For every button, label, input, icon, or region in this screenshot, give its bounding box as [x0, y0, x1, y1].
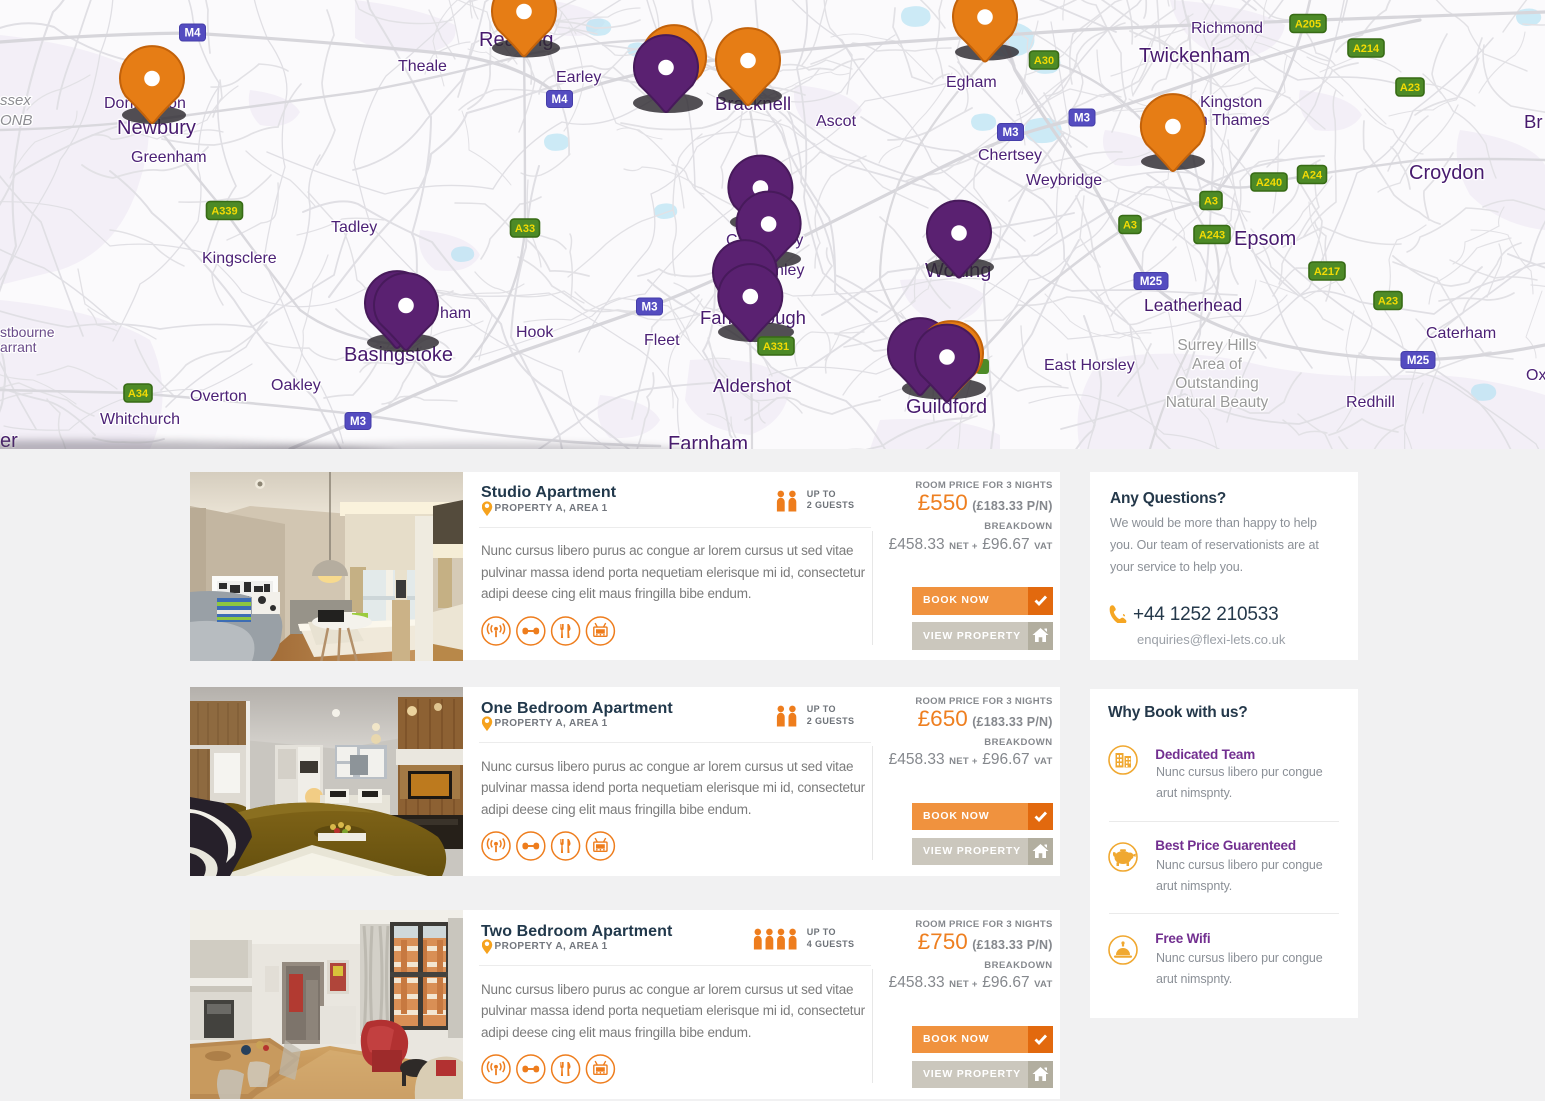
svg-text:Epsom: Epsom — [1234, 228, 1296, 250]
svg-text:M3: M3 — [1074, 113, 1090, 125]
svg-text:Weybridge: Weybridge — [1026, 172, 1102, 189]
svg-text:Whitchurch: Whitchurch — [100, 411, 180, 428]
svg-text:A30: A30 — [1034, 55, 1054, 67]
svg-text:M25: M25 — [1407, 355, 1430, 367]
svg-text:Richmond: Richmond — [1191, 20, 1263, 37]
svg-text:A34: A34 — [128, 388, 149, 400]
svg-text:Kingsclere: Kingsclere — [202, 250, 277, 267]
svg-text:Natural Beauty: Natural Beauty — [1166, 394, 1269, 411]
svg-text:Croydon: Croydon — [1409, 162, 1485, 184]
svg-text:Redhill: Redhill — [1346, 394, 1395, 411]
svg-text:A33: A33 — [515, 223, 535, 235]
svg-text:ONB: ONB — [0, 112, 33, 129]
svg-text:stbourne: stbourne — [0, 324, 55, 340]
svg-text:Chertsey: Chertsey — [978, 147, 1042, 164]
svg-text:M3: M3 — [350, 416, 366, 428]
svg-text:Br: Br — [1524, 111, 1543, 132]
svg-text:Tadley: Tadley — [331, 219, 377, 236]
svg-text:Ascot: Ascot — [816, 113, 857, 130]
svg-text:Overton: Overton — [190, 388, 247, 405]
svg-text:A23: A23 — [1400, 82, 1420, 94]
svg-text:Ox: Ox — [1526, 367, 1545, 384]
svg-text:ham: ham — [440, 305, 471, 322]
svg-text:A217: A217 — [1314, 266, 1340, 278]
svg-text:A339: A339 — [211, 206, 237, 218]
svg-text:Outstanding: Outstanding — [1175, 375, 1259, 392]
svg-text:Surrey Hills: Surrey Hills — [1177, 337, 1256, 354]
svg-text:A3: A3 — [1204, 196, 1218, 208]
svg-text:A24: A24 — [1302, 170, 1323, 182]
svg-text:Caterham: Caterham — [1426, 325, 1496, 342]
svg-text:Fleet: Fleet — [644, 332, 680, 349]
svg-text:Theale: Theale — [398, 58, 447, 75]
svg-text:A214: A214 — [1353, 43, 1380, 55]
svg-text:Kingston: Kingston — [1200, 94, 1262, 111]
svg-text:A3: A3 — [1123, 220, 1137, 232]
svg-text:Aldershot: Aldershot — [713, 375, 791, 396]
svg-text:Hook: Hook — [516, 324, 554, 341]
svg-text:M4: M4 — [552, 94, 569, 106]
svg-text:Twickenham: Twickenham — [1139, 45, 1250, 67]
svg-text:Farnham: Farnham — [668, 433, 748, 449]
svg-text:Leatherhead: Leatherhead — [1144, 295, 1242, 315]
svg-text:A240: A240 — [1256, 177, 1282, 189]
svg-text:Area of: Area of — [1192, 356, 1243, 373]
svg-text:M3: M3 — [642, 302, 658, 314]
svg-text:Oakley: Oakley — [271, 377, 321, 394]
svg-text:M3: M3 — [1003, 127, 1019, 139]
svg-text:East Horsley: East Horsley — [1044, 357, 1135, 374]
svg-text:Egham: Egham — [946, 74, 997, 91]
svg-text:Greenham: Greenham — [131, 149, 207, 166]
svg-text:M25: M25 — [1140, 276, 1163, 288]
svg-text:M4: M4 — [185, 28, 202, 40]
svg-text:A243: A243 — [1199, 230, 1225, 242]
svg-text:A205: A205 — [1295, 19, 1321, 31]
svg-text:arrant: arrant — [0, 339, 37, 355]
svg-text:Earley: Earley — [556, 69, 601, 86]
svg-text:A331: A331 — [763, 341, 789, 353]
svg-text:ssex: ssex — [0, 92, 31, 109]
svg-text:A23: A23 — [1378, 296, 1398, 308]
